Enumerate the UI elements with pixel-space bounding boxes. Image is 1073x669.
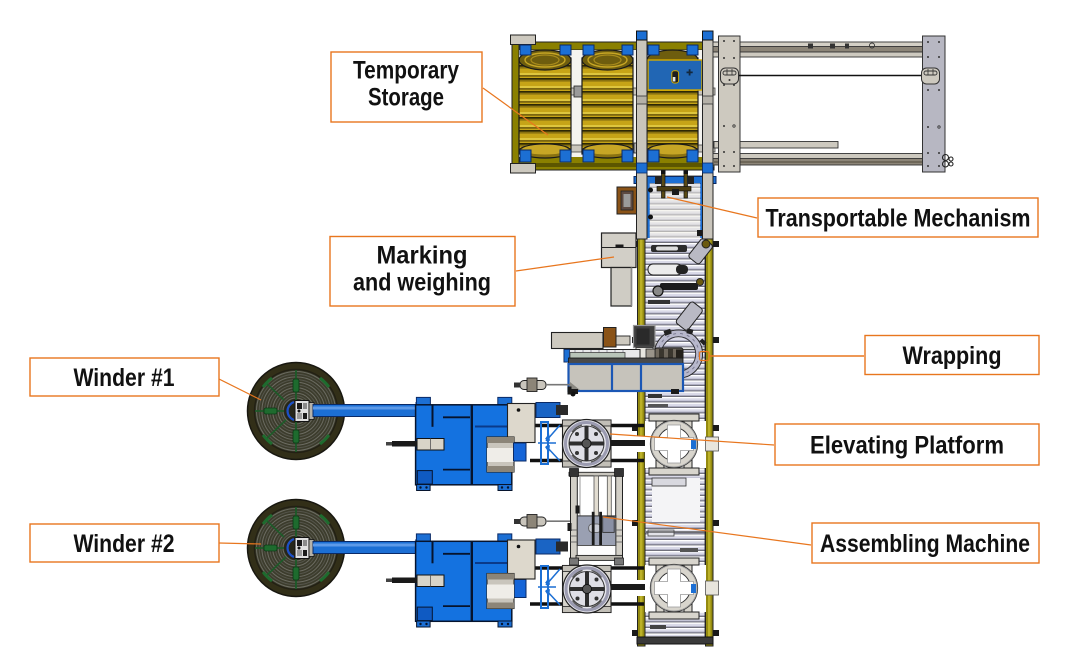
svg-text:Transportable Mechanism: Transportable Mechanism: [766, 205, 1031, 233]
svg-text:Assembling Machine: Assembling Machine: [820, 530, 1030, 558]
svg-text:Wrapping: Wrapping: [903, 342, 1002, 370]
svg-text:and weighing: and weighing: [353, 269, 491, 297]
svg-text:Temporary: Temporary: [353, 57, 459, 85]
svg-text:Marking: Marking: [377, 242, 468, 270]
svg-text:Winder #2: Winder #2: [74, 530, 175, 558]
svg-text:Storage: Storage: [368, 84, 444, 112]
svg-text:Elevating Platform: Elevating Platform: [810, 432, 1004, 460]
svg-text:Winder #1: Winder #1: [74, 364, 175, 392]
